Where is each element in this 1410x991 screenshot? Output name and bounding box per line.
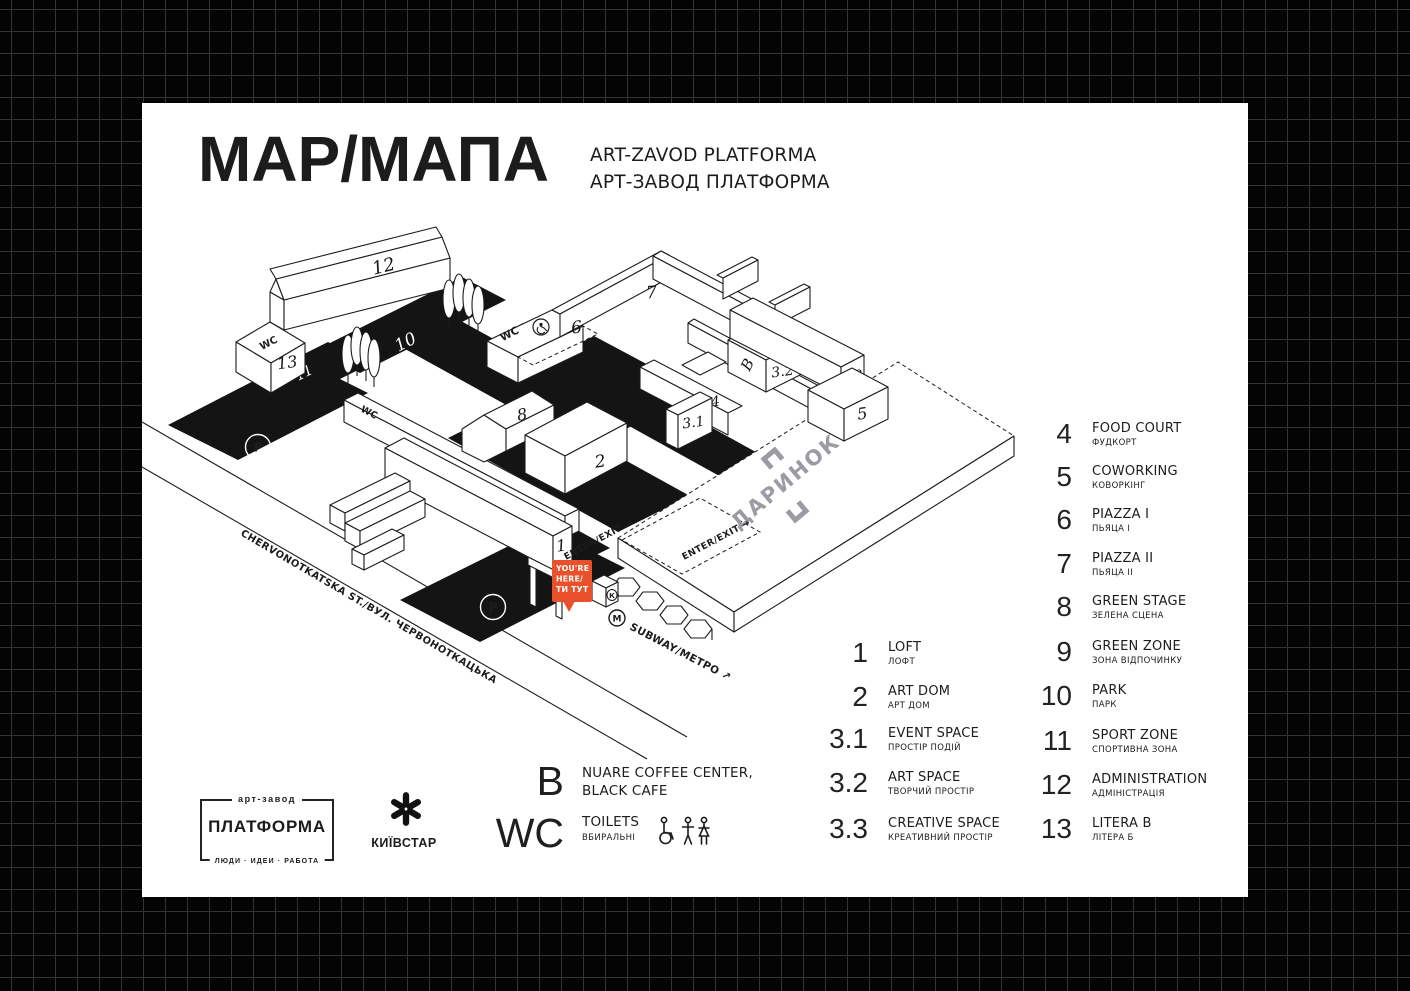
- legend-item-3-1: 3.1 EVENT SPACE ПРОСТІР ПОДІЙ: [782, 727, 979, 753]
- you-are-here-line-3: ТИ ТУТ: [556, 585, 589, 594]
- legend-item-8: 8 GREEN STAGE ЗЕЛЕНА СЦЕНА: [982, 595, 1186, 621]
- legend-label-ua: ТВОРЧИЙ ПРОСТІР: [888, 788, 974, 797]
- toilets-icons: [655, 814, 713, 848]
- subtitle-ua: АРТ-ЗАВОД ПЛАТФОРМА: [590, 170, 830, 197]
- legend-label-en: ADMINISTRATION: [1092, 773, 1207, 786]
- legend-label-ua: ПЬЯЦА I: [1092, 525, 1149, 534]
- subtitle-en: ART-ZAVOD PLATFORMA: [590, 143, 830, 170]
- legend-item-7: 7 PIAZZA II ПЬЯЦА II: [982, 552, 1153, 578]
- poster-subtitle: ART-ZAVOD PLATFORMA АРТ-ЗАВОД ПЛАТФОРМА: [590, 143, 830, 197]
- legend-number: 3.2: [782, 769, 868, 797]
- legend-number: 7: [982, 550, 1072, 578]
- kiosk: К: [592, 575, 618, 607]
- legend-label-ua: ЛОФТ: [888, 658, 921, 667]
- legend-label-ua: ФУДКОРТ: [1092, 439, 1181, 448]
- legend-item-12: 12 ADMINISTRATION АДМІНІСТРАЦІЯ: [982, 773, 1207, 799]
- legend-item-9: 9 GREEN ZONE ЗОНА ВІДПОЧИНКУ: [982, 640, 1182, 666]
- legend-label-ua: ПРОСТІР ПОДІЙ: [888, 744, 979, 753]
- parking-letter-2: P: [489, 601, 498, 615]
- cafe-line-1: NUARE COFFEE CENTER,: [582, 764, 753, 782]
- legend-number: 8: [982, 593, 1072, 621]
- toilets-label-ua: ВБИРАЛЬНІ: [582, 834, 639, 843]
- legend-item-10: 10 PARK ПАРК: [982, 684, 1126, 710]
- legend-number: 5: [982, 463, 1072, 491]
- legend-label-en: SPORT ZONE: [1092, 729, 1178, 742]
- platforma-logo-bottom: ЛЮДИ · ИДЕИ · РАБОТА: [210, 858, 325, 865]
- man-icon: [686, 817, 691, 822]
- wc-symbol: WC: [462, 813, 564, 854]
- legend-item-2: 2 ART DOM АРТ ДОМ: [782, 685, 950, 711]
- woman-icon: [702, 817, 707, 822]
- legend-label-ua: ЗОНА ВІДПОЧИНКУ: [1092, 657, 1182, 666]
- legend-label-en: LITERA B: [1092, 817, 1152, 830]
- toilets-label-en: TOILETS: [582, 816, 639, 830]
- legend-label-ua: ЗЕЛЕНА СЦЕНА: [1092, 612, 1186, 621]
- legend-item-6: 6 PIAZZA I ПЬЯЦА I: [982, 508, 1149, 534]
- legend-label-en: GREEN ZONE: [1092, 640, 1182, 653]
- parking-letter-1: P: [254, 441, 263, 455]
- building-number-7: 7: [645, 283, 658, 304]
- legend-item-11: 11 SPORT ZONE СПОРТИВНА ЗОНА: [982, 729, 1178, 755]
- cafe-symbol: B: [462, 761, 564, 802]
- legend-number: 9: [982, 638, 1072, 666]
- platforma-logo-top: арт-завод: [232, 794, 302, 804]
- you-are-here-line-2: HERE/: [556, 575, 583, 584]
- kiosk-k-letter: К: [609, 592, 615, 600]
- legend-label-en: PARK: [1092, 684, 1126, 697]
- legend-number: 11: [982, 727, 1072, 755]
- legend-label-ua: АДМІНІСТРАЦІЯ: [1092, 790, 1207, 799]
- subway-label: SUBWAY/МЕТРО ↗: [628, 621, 733, 684]
- legend-item-3-2: 3.2 ART SPACE ТВОРЧИЙ ПРОСТІР: [782, 771, 974, 797]
- legend-item-5: 5 COWORKING КОВОРКІНГ: [982, 465, 1178, 491]
- legend-label-en: LOFT: [888, 641, 921, 654]
- legend-number: 6: [982, 506, 1072, 534]
- poster-card: MAP/МАПА ART-ZAVOD PLATFORMA АРТ-ЗАВОД П…: [142, 103, 1248, 897]
- platforma-logo-name: ПЛАТФОРМА: [202, 817, 332, 837]
- legend-number: 10: [982, 682, 1072, 710]
- building-number-13: 13: [276, 352, 299, 374]
- legend-label-en: FOOD COURT: [1092, 422, 1181, 435]
- cafe-line-2: BLACK CAFE: [582, 782, 753, 800]
- wheelchair-icon-head: [539, 323, 542, 326]
- legend-label-en: PIAZZA II: [1092, 552, 1153, 565]
- legend-label-ua: ЛІТЕРА Б: [1092, 834, 1152, 843]
- legend-number: 12: [982, 771, 1072, 799]
- legend-number: 2: [782, 683, 868, 711]
- legend-item-3-3: 3.3 CREATIVE SPACE КРЕАТИВНИЙ ПРОСТІР: [782, 817, 1000, 843]
- legend-number: 3.3: [782, 815, 868, 843]
- wheelchair-icon: [662, 817, 667, 822]
- legend-number: 13: [982, 815, 1072, 843]
- legend-item-4: 4 FOOD COURT ФУДКОРТ: [982, 422, 1181, 448]
- legend-label-ua: ПАРК: [1092, 701, 1126, 710]
- legend-item-13: 13 LITERA B ЛІТЕРА Б: [982, 817, 1152, 843]
- legend-label-ua: АРТ ДОМ: [888, 702, 950, 711]
- legend-label-en: PIAZZA I: [1092, 508, 1149, 521]
- legend-number: 3.1: [782, 725, 868, 753]
- platforma-logo: арт-завод ПЛАТФОРМА ЛЮДИ · ИДЕИ · РАБОТА: [200, 799, 334, 861]
- page-title: MAP/МАПА: [198, 127, 549, 191]
- legend-label-ua: ПЬЯЦА II: [1092, 569, 1153, 578]
- legend-number: 1: [782, 639, 868, 667]
- kyivstar-logo-star: [386, 787, 426, 831]
- kyivstar-logo-name: КИЇВСТАР: [363, 836, 445, 850]
- legend-label-ua: СПОРТИВНА ЗОНА: [1092, 746, 1178, 755]
- legend-label-en: ART DOM: [888, 685, 950, 698]
- building-number-6: 6: [570, 318, 583, 339]
- you-are-here-line-1: YOU'RE: [555, 564, 589, 573]
- legend-toilets-entry: WC TOILETS ВБИРАЛЬНІ: [462, 813, 713, 854]
- legend-label-en: GREEN STAGE: [1092, 595, 1186, 608]
- legend-label-en: ART SPACE: [888, 771, 974, 784]
- legend-label-en: COWORKING: [1092, 465, 1178, 478]
- legend-number: 4: [982, 420, 1072, 448]
- metro-m-letter: M: [613, 615, 622, 625]
- legend-label-en: EVENT SPACE: [888, 727, 979, 740]
- site-map-illustration: CHERVONOTKATSKA ST./ВУЛ. ЧЕРВОНОТКАЦЬКА …: [142, 215, 1042, 815]
- legend-label-ua: КОВОРКІНГ: [1092, 482, 1178, 491]
- building-number-3-1: 3.1: [681, 414, 705, 433]
- legend-cafe-entry: B NUARE COFFEE CENTER, BLACK CAFE: [462, 761, 753, 802]
- legend-item-1: 1 LOFT ЛОФТ: [782, 641, 921, 667]
- zone-label-9: 9: [440, 379, 463, 398]
